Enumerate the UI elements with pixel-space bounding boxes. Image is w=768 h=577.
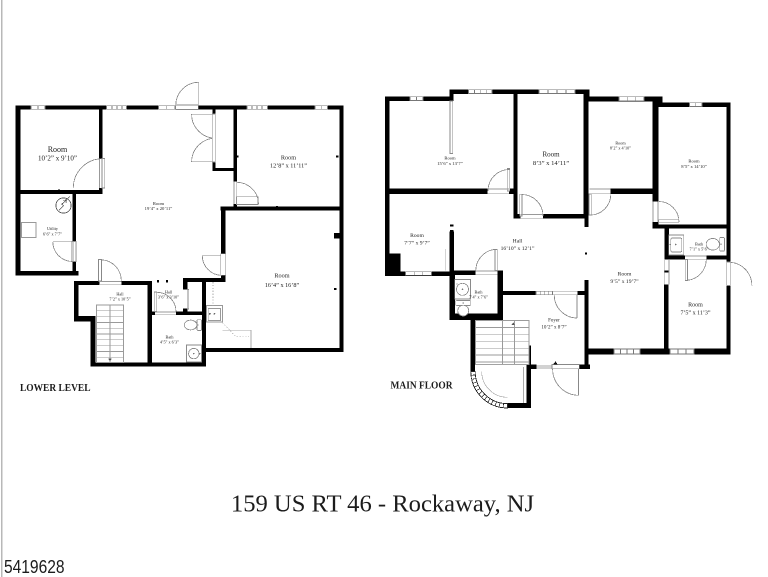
svg-text:8’2” x 4’10”: 8’2” x 4’10”	[610, 146, 631, 151]
svg-text:7’4” x 7’6”: 7’4” x 7’6”	[469, 295, 488, 300]
svg-text:Hall: Hall	[513, 239, 523, 245]
svg-text:Room: Room	[688, 303, 703, 309]
svg-text:LOWER LEVEL: LOWER LEVEL	[20, 382, 91, 394]
svg-text:7’5” x 11’3”: 7’5” x 11’3”	[680, 311, 710, 317]
svg-text:3’6” x 3’10”: 3’6” x 3’10”	[158, 295, 179, 300]
svg-text:Room: Room	[274, 273, 289, 280]
svg-text:Room: Room	[281, 155, 296, 162]
svg-text:9’5” x 19’7”: 9’5” x 19’7”	[610, 279, 639, 285]
svg-text:5419628: 5419628	[4, 557, 65, 577]
svg-text:10’2” x 8’7”: 10’2” x 8’7”	[541, 326, 566, 331]
svg-text:7’2” x 10’5”: 7’2” x 10’5”	[109, 297, 130, 302]
svg-text:7’1” x 5’6”: 7’1” x 5’6”	[689, 247, 708, 252]
svg-text:159 US RT 46 - Rockaway, NJ: 159 US RT 46 - Rockaway, NJ	[231, 491, 535, 518]
svg-text:Room: Room	[444, 156, 456, 161]
svg-text:6’6” x 7’7”: 6’6” x 7’7”	[43, 232, 62, 237]
svg-text:Utility: Utility	[47, 226, 59, 231]
svg-text:8’3” x 14’11”: 8’3” x 14’11”	[533, 160, 569, 167]
svg-text:Room: Room	[542, 151, 560, 159]
svg-text:8’5” x 14’10”: 8’5” x 14’10”	[681, 164, 707, 169]
svg-text:Foyer: Foyer	[548, 319, 560, 324]
svg-text:Room: Room	[48, 145, 68, 154]
svg-text:7’7” x 9’7”: 7’7” x 9’7”	[404, 241, 430, 247]
svg-text:15’6” x 13’7”: 15’6” x 13’7”	[437, 161, 463, 166]
svg-text:Room: Room	[688, 159, 700, 164]
svg-text:16’4” x 16’8”: 16’4” x 16’8”	[265, 282, 300, 289]
svg-text:MAIN FLOOR: MAIN FLOOR	[391, 380, 454, 392]
svg-text:12’8” x 11’11”: 12’8” x 11’11”	[270, 163, 307, 170]
svg-text:10’2” x 9’10”: 10’2” x 9’10”	[38, 155, 77, 163]
svg-text:4’5” x 6’3”: 4’5” x 6’3”	[160, 340, 179, 345]
svg-text:19’4” x 20’11”: 19’4” x 20’11”	[145, 206, 173, 211]
svg-text:Room: Room	[410, 233, 424, 239]
svg-text:Room: Room	[618, 272, 632, 278]
svg-text:16’10” x 12’1”: 16’10” x 12’1”	[501, 246, 535, 252]
